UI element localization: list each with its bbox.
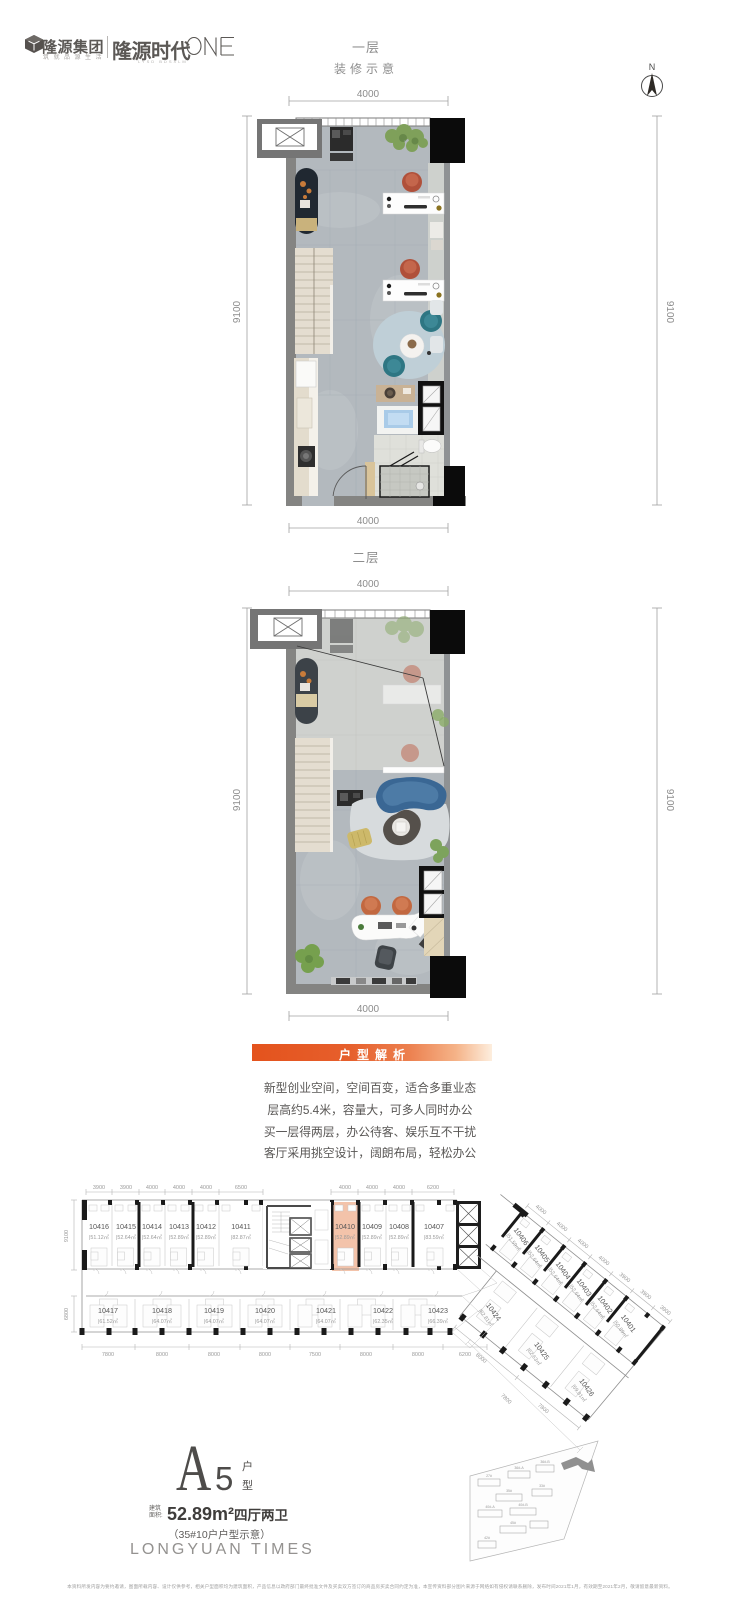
svg-text:4000: 4000 [200,1185,212,1191]
svg-text:10422: 10422 [373,1306,393,1315]
svg-text:4000: 4000 [146,1185,158,1191]
svg-text:40#-B: 40#-B [518,1503,528,1507]
svg-text:4000: 4000 [339,1185,351,1191]
svg-text:3900: 3900 [639,1289,652,1301]
svg-text:4000: 4000 [366,1185,378,1191]
svg-text:7800: 7800 [536,1403,549,1415]
svg-text:|52.64㎡: |52.64㎡ [116,1233,137,1241]
svg-text:|66.39㎡: |66.39㎡ [428,1317,449,1325]
svg-text:10420: 10420 [255,1306,275,1315]
svg-text:10416: 10416 [89,1222,109,1231]
svg-text:36#-B: 36#-B [540,1460,550,1464]
svg-text:8000: 8000 [208,1352,220,1358]
svg-text:4000: 4000 [357,516,380,527]
svg-text:10419: 10419 [204,1306,224,1315]
svg-text:4000: 4000 [357,89,380,100]
svg-text:3900: 3900 [120,1185,132,1191]
svg-text:10417: 10417 [98,1306,118,1315]
svg-text:10418: 10418 [152,1306,172,1315]
svg-text:3900: 3900 [658,1305,671,1317]
svg-text:9100: 9100 [664,301,675,324]
svg-text:|52.89㎡: |52.89㎡ [196,1233,217,1241]
svg-text:4000: 4000 [576,1238,589,1250]
svg-text:10409: 10409 [362,1222,382,1231]
svg-text:45#: 45# [510,1521,516,1525]
svg-text:8000: 8000 [360,1352,372,1358]
svg-text:9100: 9100 [232,788,243,811]
svg-text:|64.07㎡: |64.07㎡ [152,1317,173,1325]
svg-text:10408: 10408 [389,1222,409,1231]
svg-text:4000: 4000 [393,1185,405,1191]
svg-text:10421: 10421 [316,1306,336,1315]
svg-text:|62.35㎡: |62.35㎡ [373,1317,394,1325]
svg-text:|64.07㎡: |64.07㎡ [316,1317,337,1325]
svg-text:|52.89㎡: |52.89㎡ [362,1233,383,1241]
svg-text:4000: 4000 [597,1255,610,1267]
svg-text:10411: 10411 [231,1222,250,1231]
svg-text:40#-A: 40#-A [485,1505,495,1509]
svg-text:10414: 10414 [142,1222,162,1231]
svg-text:4000: 4000 [173,1185,185,1191]
svg-text:7500: 7500 [309,1352,321,1358]
svg-text:36#-A: 36#-A [514,1466,524,1470]
svg-text:10412: 10412 [196,1222,216,1231]
svg-text:9100: 9100 [64,1230,70,1242]
svg-text:6200: 6200 [427,1185,439,1191]
svg-text:|61.52㎡: |61.52㎡ [98,1317,119,1325]
svg-text:8000: 8000 [412,1352,424,1358]
svg-text:4000: 4000 [357,579,380,590]
svg-text:4000: 4000 [555,1221,568,1233]
svg-text:4000: 4000 [534,1204,547,1216]
svg-text:10423: 10423 [428,1306,448,1315]
svg-text:8000: 8000 [156,1352,168,1358]
svg-text:|82.87㎡: |82.87㎡ [231,1233,252,1241]
svg-text:6500: 6500 [235,1185,247,1191]
svg-text:10415: 10415 [116,1222,136,1231]
svg-text:10410: 10410 [335,1222,355,1231]
svg-text:3900: 3900 [93,1185,105,1191]
svg-text:|64.07㎡: |64.07㎡ [255,1317,276,1325]
svg-text:10407: 10407 [424,1222,444,1231]
svg-text:6200: 6200 [459,1352,471,1358]
svg-text:4000: 4000 [357,1004,380,1015]
svg-text:27#: 27# [486,1474,492,1478]
svg-text:33#: 33# [539,1484,545,1488]
svg-text:8000: 8000 [259,1352,271,1358]
svg-text:10413: 10413 [169,1222,189,1231]
svg-text:3900: 3900 [618,1272,631,1284]
svg-text:|51.12㎡: |51.12㎡ [89,1233,110,1241]
svg-text:42#: 42# [484,1536,490,1540]
svg-text:|83.59㎡: |83.59㎡ [424,1233,445,1241]
svg-text:|52.89㎡: |52.89㎡ [389,1233,410,1241]
svg-text:9100: 9100 [232,300,243,323]
svg-text:|52.89㎡: |52.89㎡ [169,1233,190,1241]
svg-text:|52.64㎡: |52.64㎡ [142,1233,163,1241]
svg-text:9100: 9100 [664,789,675,812]
svg-text:|52.89㎡: |52.89㎡ [335,1233,356,1241]
svg-text:35#: 35# [506,1489,512,1493]
svg-text:7800: 7800 [102,1352,114,1358]
svg-text:7800: 7800 [499,1393,512,1406]
svg-text:|64.07㎡: |64.07㎡ [204,1317,225,1325]
svg-text:6800: 6800 [64,1308,70,1320]
